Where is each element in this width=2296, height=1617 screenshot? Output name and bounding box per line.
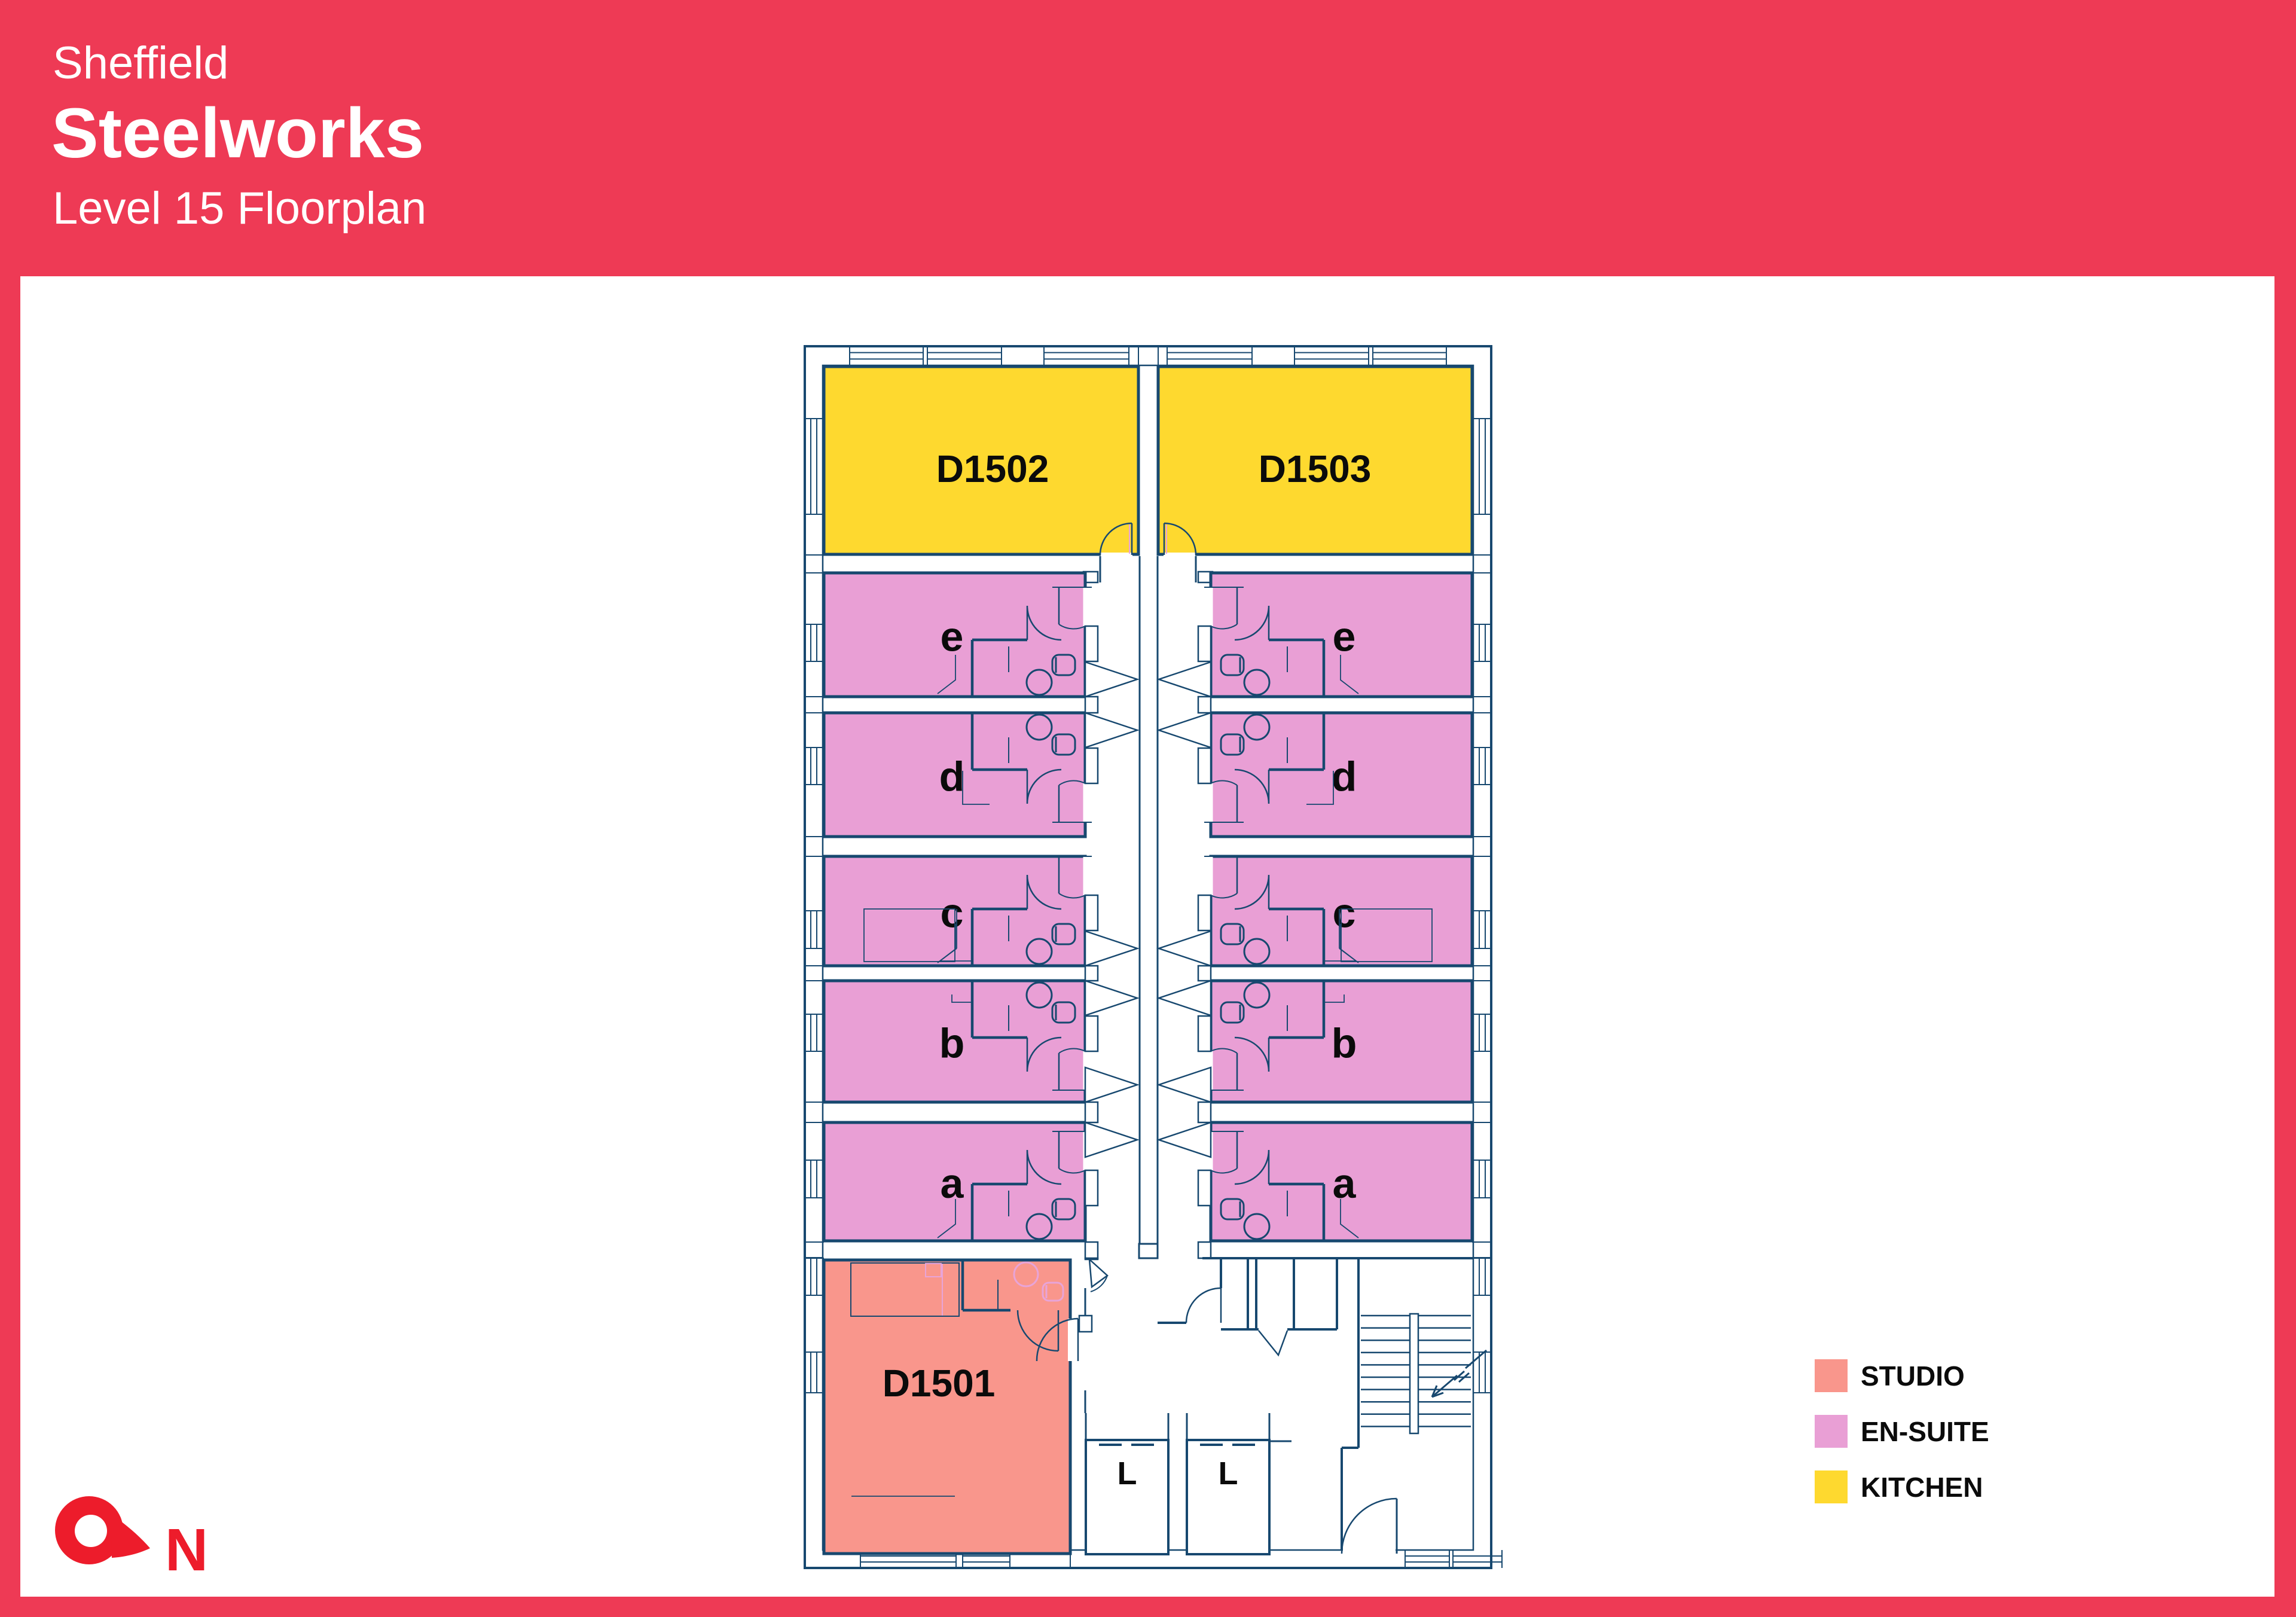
svg-text:Sheffield: Sheffield: [53, 38, 228, 89]
svg-text:d: d: [1332, 753, 1357, 800]
svg-text:a: a: [941, 1160, 964, 1207]
svg-text:c: c: [941, 890, 964, 936]
svg-text:L: L: [1118, 1456, 1137, 1491]
svg-text:b: b: [1332, 1020, 1357, 1067]
svg-text:e: e: [1333, 614, 1356, 660]
svg-text:b: b: [939, 1020, 965, 1067]
svg-text:e: e: [941, 614, 964, 660]
svg-text:KITCHEN: KITCHEN: [1861, 1472, 1983, 1503]
svg-text:a: a: [1333, 1160, 1357, 1207]
svg-text:D1502: D1502: [936, 447, 1049, 490]
svg-text:Steelworks: Steelworks: [51, 94, 424, 173]
svg-text:STUDIO: STUDIO: [1861, 1360, 1965, 1392]
svg-text:L: L: [1219, 1456, 1238, 1491]
svg-text:c: c: [1333, 890, 1356, 936]
svg-text:D1503: D1503: [1259, 447, 1372, 490]
svg-text:d: d: [939, 753, 965, 800]
svg-text:N: N: [165, 1517, 208, 1584]
svg-text:Level 15 Floorplan: Level 15 Floorplan: [53, 183, 426, 234]
svg-text:D1501: D1501: [883, 1362, 996, 1405]
svg-text:EN-SUITE: EN-SUITE: [1861, 1416, 1989, 1447]
